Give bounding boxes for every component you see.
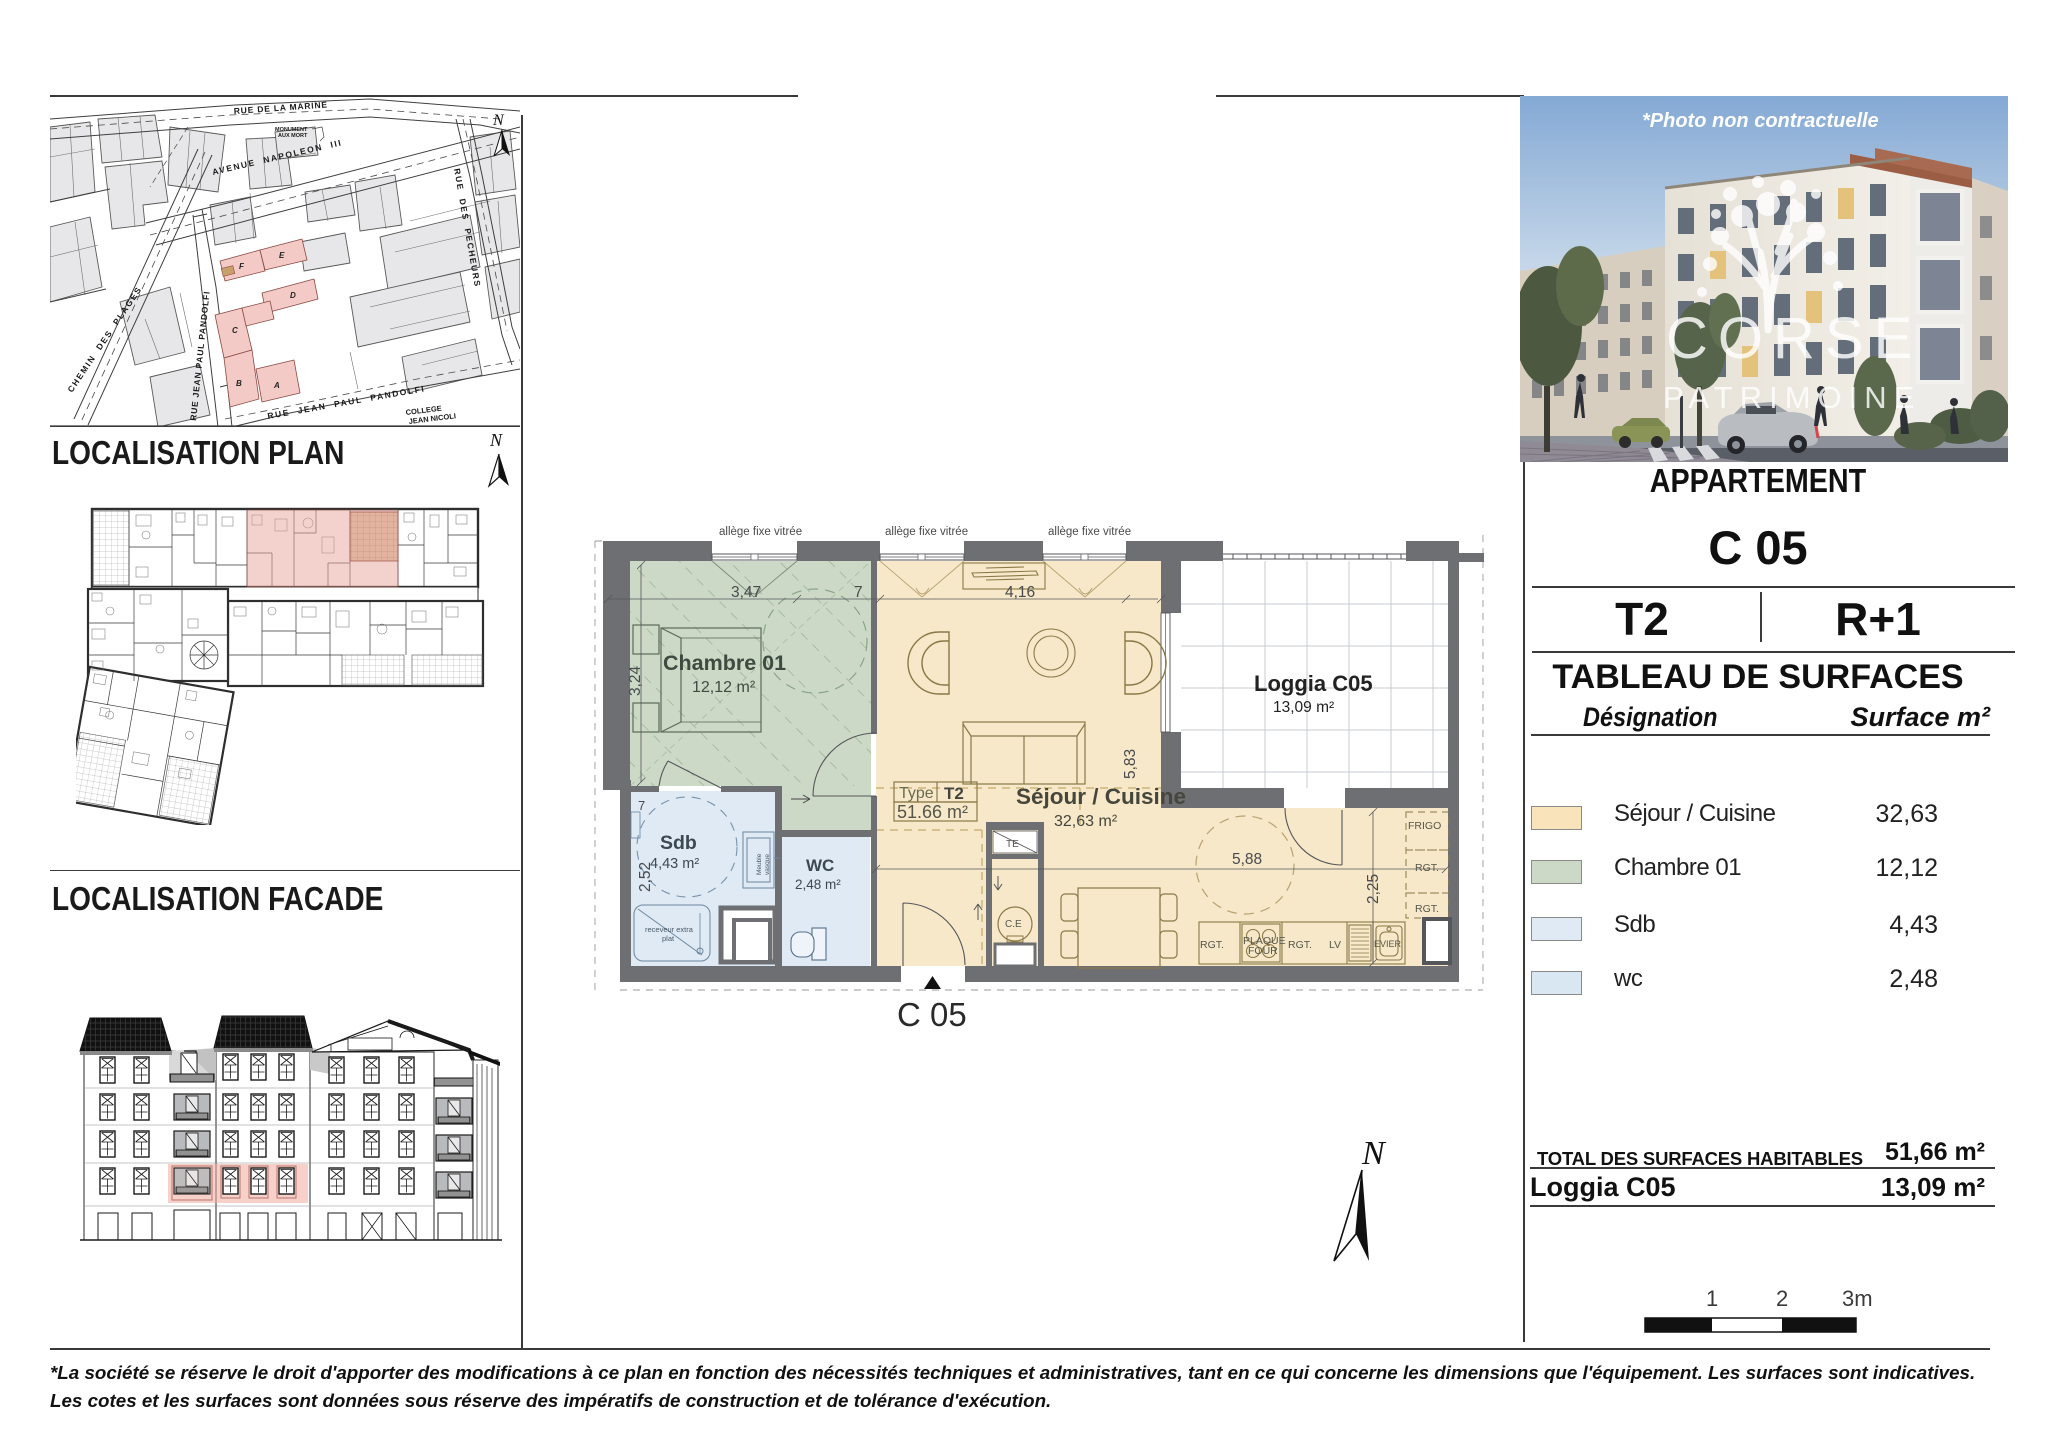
svg-text:EVIER: EVIER — [1374, 939, 1402, 949]
svg-text:RGT.: RGT. — [1288, 939, 1312, 951]
svg-text:FRIGO: FRIGO — [1408, 820, 1441, 832]
svg-text:Séjour / Cuisine: Séjour / Cuisine — [1016, 784, 1186, 809]
svg-text:*Photo non contractuelle: *Photo non contractuelle — [1642, 110, 1879, 132]
svg-text:AUX MORT: AUX MORT — [278, 133, 308, 139]
svg-text:1: 1 — [1706, 1286, 1718, 1311]
svg-text:allège fixe vitrée: allège fixe vitrée — [885, 526, 968, 538]
svg-text:E: E — [279, 251, 285, 260]
svg-text:Loggia C05: Loggia C05 — [1254, 671, 1373, 696]
svg-text:D: D — [290, 291, 296, 300]
svg-text:vasque: vasque — [764, 854, 771, 875]
svg-text:RGT.: RGT. — [1415, 903, 1439, 915]
svg-text:PATRIMOINE: PATRIMOINE — [1663, 380, 1921, 415]
svg-text:allège fixe vitrée: allège fixe vitrée — [719, 526, 802, 538]
svg-text:T2: T2 — [944, 784, 964, 803]
svg-text:receveur extra: receveur extra — [645, 925, 694, 934]
svg-text:C 05: C 05 — [897, 996, 967, 1033]
svg-text:3,47: 3,47 — [731, 584, 761, 601]
svg-text:TE: TE — [1006, 839, 1019, 850]
svg-text:2,48 m²: 2,48 m² — [795, 877, 841, 892]
svg-text:3,24: 3,24 — [627, 665, 644, 696]
svg-text:A: A — [273, 381, 280, 390]
svg-text:32,63 m²: 32,63 m² — [1054, 813, 1118, 830]
svg-text:Chambre 01: Chambre 01 — [663, 651, 786, 675]
svg-text:5,83: 5,83 — [1122, 749, 1139, 779]
svg-text:Meuble: Meuble — [756, 853, 763, 875]
svg-text:2,25: 2,25 — [1365, 874, 1382, 904]
svg-text:C: C — [232, 326, 238, 335]
svg-text:Type: Type — [899, 785, 934, 802]
svg-text:RGT.: RGT. — [1200, 939, 1224, 951]
svg-text:5,88: 5,88 — [1232, 851, 1262, 868]
svg-text:13,09 m²: 13,09 m² — [1273, 699, 1334, 716]
svg-text:LV: LV — [1329, 939, 1341, 951]
svg-text:12,12 m²: 12,12 m² — [692, 679, 756, 696]
svg-text:N: N — [489, 430, 503, 450]
svg-text:C.E: C.E — [1005, 919, 1022, 930]
svg-text:plat: plat — [662, 934, 675, 943]
svg-text:B: B — [236, 379, 242, 388]
svg-text:N: N — [1361, 1135, 1387, 1172]
svg-text:7: 7 — [638, 798, 645, 813]
svg-text:4,43 m²: 4,43 m² — [650, 856, 699, 872]
svg-text:RGT.: RGT. — [1415, 862, 1439, 874]
svg-text:2: 2 — [1776, 1286, 1788, 1311]
svg-text:CORSE: CORSE — [1666, 306, 1922, 371]
svg-text:Sdb: Sdb — [660, 832, 697, 854]
svg-text:WC: WC — [806, 856, 834, 875]
svg-text:3m: 3m — [1842, 1286, 1873, 1311]
svg-text:allège fixe vitrée: allège fixe vitrée — [1048, 526, 1131, 538]
svg-text:N: N — [492, 112, 505, 129]
svg-text:51.66 m²: 51.66 m² — [897, 802, 968, 822]
svg-text:4,16: 4,16 — [1005, 584, 1035, 601]
svg-text:FOUR: FOUR — [1248, 945, 1278, 957]
svg-text:7: 7 — [854, 584, 863, 601]
